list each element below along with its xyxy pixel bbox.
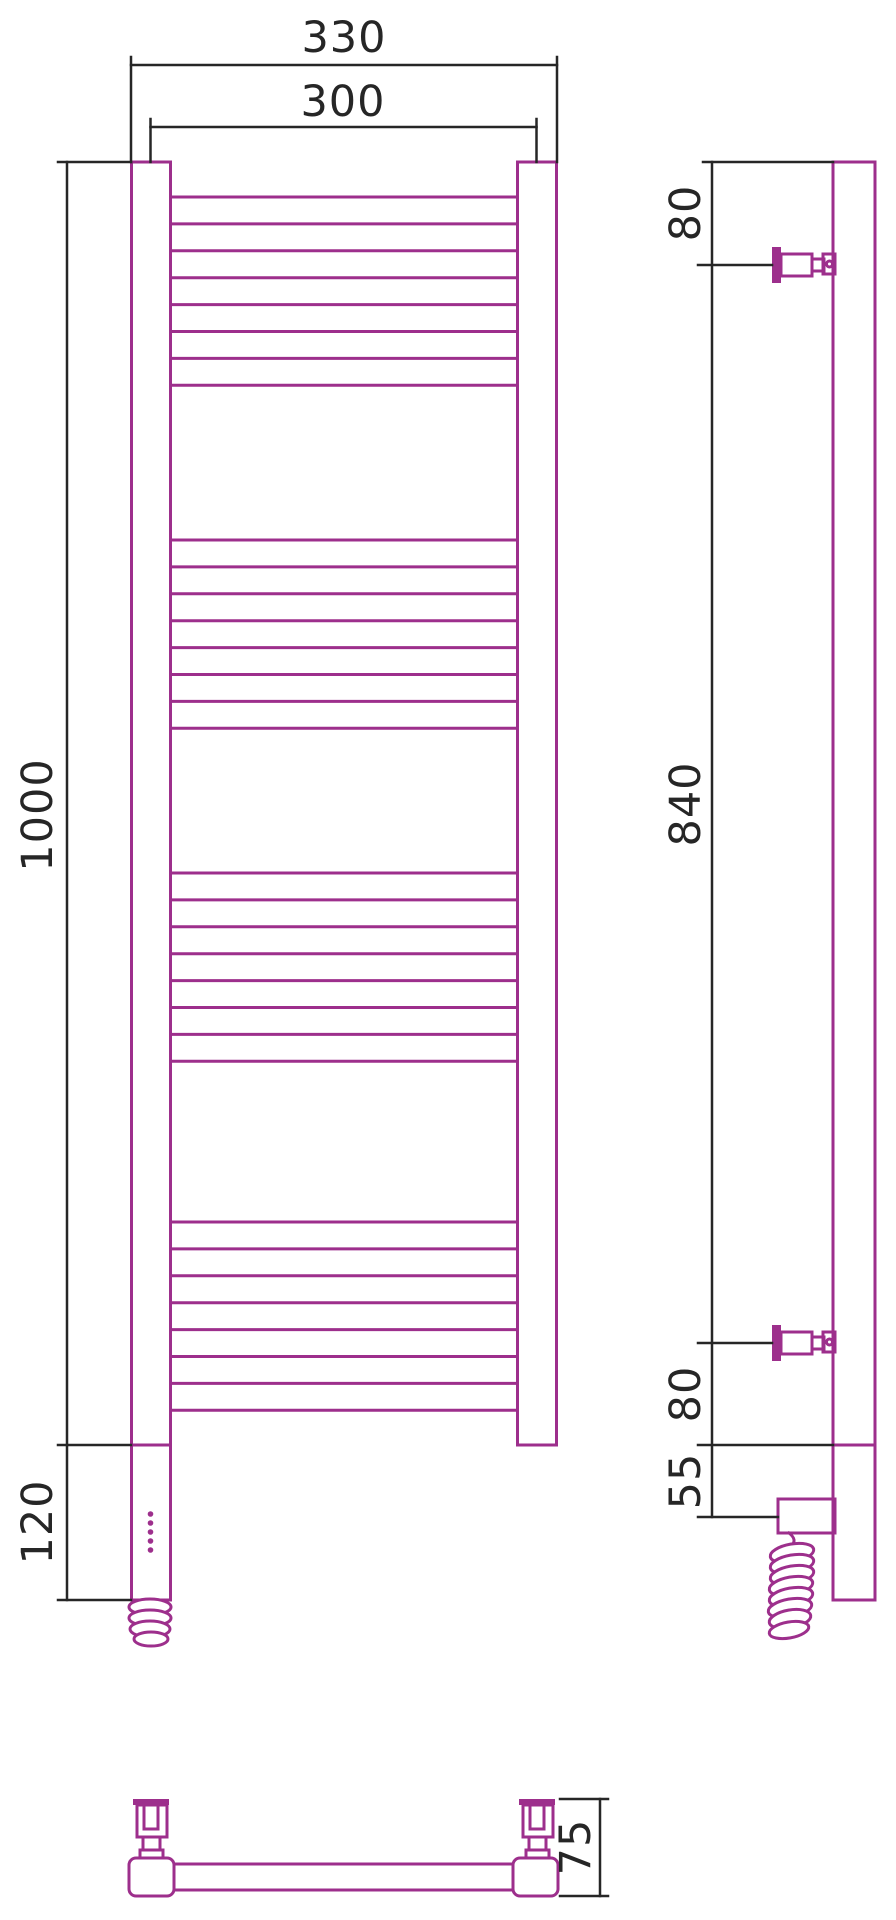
dim-label-330: 330 xyxy=(301,13,386,63)
led-dot xyxy=(148,1511,154,1517)
dim-label-1000: 1000 xyxy=(13,758,63,871)
dim-label-840: 840 xyxy=(661,761,711,846)
bottom-right-bracket xyxy=(519,1799,555,1858)
dim-label-80-bottom: 80 xyxy=(661,1366,711,1423)
led-dot xyxy=(148,1520,154,1526)
bracket-stem xyxy=(529,1837,546,1850)
bracket-body xyxy=(781,1332,812,1354)
bracket-body xyxy=(781,254,812,276)
led-dot xyxy=(148,1538,154,1544)
dim-label-80-top: 80 xyxy=(661,185,711,242)
dim-label-300: 300 xyxy=(300,77,385,127)
dim-label-55: 55 xyxy=(661,1453,711,1510)
bracket-body xyxy=(137,1805,167,1837)
bottom-left-bracket xyxy=(133,1799,169,1858)
front-right-post xyxy=(518,162,557,1445)
technical-drawing-page: 330 300 1000 120 80 840 80 55 75 xyxy=(0,0,896,1920)
led-dot xyxy=(148,1547,154,1553)
dim-label-120: 120 xyxy=(13,1479,63,1564)
bracket-socket xyxy=(530,1805,544,1829)
side-view xyxy=(767,162,875,1641)
bracket-body xyxy=(523,1805,553,1837)
bracket-stem xyxy=(143,1837,160,1850)
front-rungs xyxy=(171,197,518,1410)
dim-label-75: 75 xyxy=(551,1819,601,1876)
side-top-bracket xyxy=(772,247,835,283)
side-power-cord-coil xyxy=(767,1533,815,1641)
led-dot xyxy=(148,1529,154,1535)
front-left-post xyxy=(132,162,171,1445)
side-bottom-bracket xyxy=(772,1325,835,1361)
coil-loop xyxy=(134,1632,168,1646)
bracket-socket xyxy=(144,1805,158,1829)
bracket-screw xyxy=(827,1339,833,1345)
front-view xyxy=(129,162,557,1646)
heater-led-dots xyxy=(148,1511,154,1553)
side-heater-box xyxy=(778,1499,835,1533)
side-rail-profile xyxy=(833,162,875,1600)
front-power-cord-coil xyxy=(129,1599,171,1646)
bracket-screw xyxy=(827,261,833,267)
tube-left-cap xyxy=(129,1858,174,1896)
towel-rail-drawing: 330 300 1000 120 80 840 80 55 75 xyxy=(0,0,896,1920)
bottom-view xyxy=(129,1799,558,1896)
